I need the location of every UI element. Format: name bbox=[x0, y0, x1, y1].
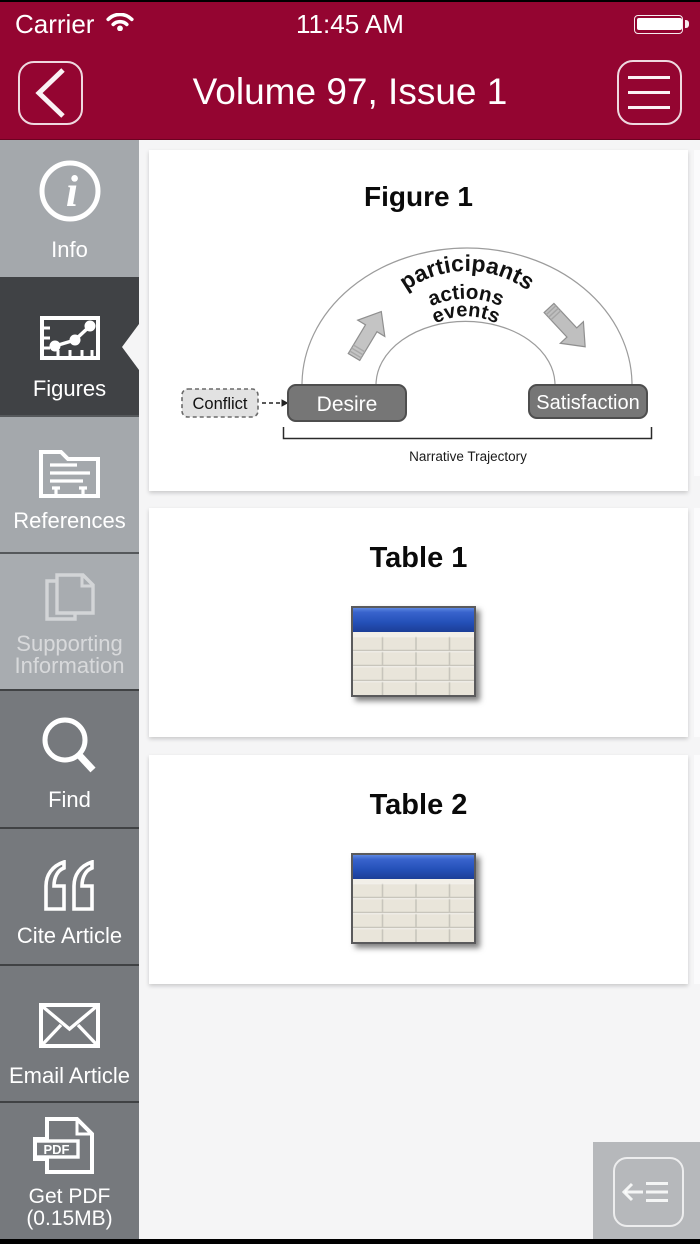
svg-text:Desire: Desire bbox=[317, 393, 378, 416]
svg-text:Satisfaction: Satisfaction bbox=[536, 392, 639, 414]
svg-text:PDF: PDF bbox=[44, 1142, 70, 1157]
svg-text:i: i bbox=[66, 167, 79, 216]
svg-text:Conflict: Conflict bbox=[192, 395, 247, 413]
svg-text:Narrative Trajectory: Narrative Trajectory bbox=[409, 449, 527, 464]
